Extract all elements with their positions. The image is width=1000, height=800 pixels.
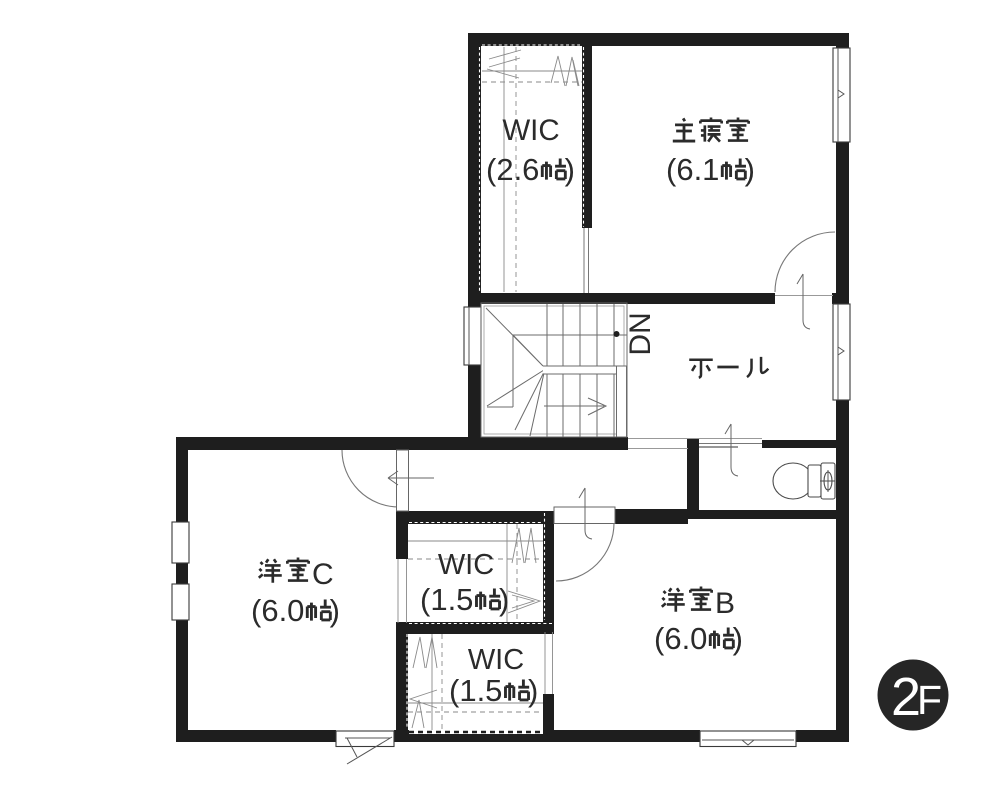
svg-text:B: B <box>715 587 735 620</box>
svg-text:): ) <box>330 593 340 628</box>
svg-text:WIC: WIC <box>502 114 559 147</box>
svg-text:(2.6: (2.6 <box>486 152 539 187</box>
svg-text:(6.0: (6.0 <box>654 621 707 656</box>
svg-text:WIC: WIC <box>438 549 494 581</box>
svg-text:): ) <box>499 582 509 617</box>
svg-text:F: F <box>917 677 942 723</box>
svg-text:): ) <box>745 152 755 187</box>
svg-text:(6.0: (6.0 <box>251 593 304 628</box>
svg-text:C: C <box>312 558 334 591</box>
svg-text:(1.5: (1.5 <box>420 582 473 617</box>
svg-text:): ) <box>733 621 743 656</box>
svg-text:(6.1: (6.1 <box>666 152 719 187</box>
svg-text:(1.5: (1.5 <box>449 673 502 708</box>
svg-text:DN: DN <box>624 312 657 355</box>
svg-text:): ) <box>528 673 538 708</box>
svg-text:): ) <box>565 152 575 187</box>
svg-text:WIC: WIC <box>468 644 524 676</box>
